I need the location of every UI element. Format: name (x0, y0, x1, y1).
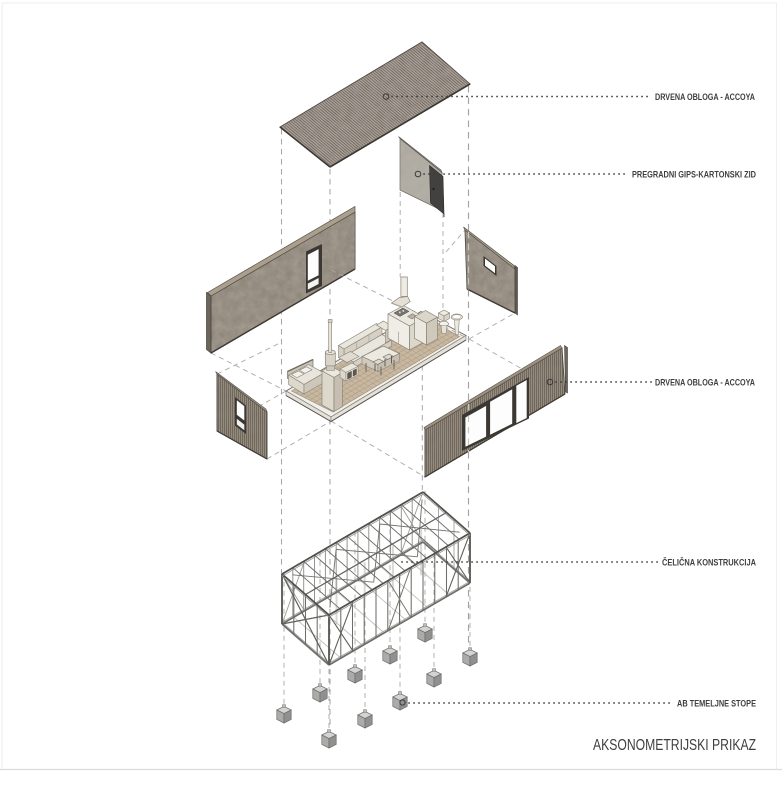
svg-text:AB TEMELJNE STOPE: AB TEMELJNE STOPE (677, 698, 756, 708)
svg-text:DRVENA OBLOGA - ACCOYA: DRVENA OBLOGA - ACCOYA (655, 377, 756, 387)
svg-text:ČELIČNA KONSTRUKCIJA: ČELIČNA KONSTRUKCIJA (662, 556, 757, 567)
svg-text:AKSONOMETRIJSKI PRIKAZ: AKSONOMETRIJSKI PRIKAZ (593, 737, 756, 754)
svg-text:DRVENA OBLOGA - ACCOYA: DRVENA OBLOGA - ACCOYA (655, 92, 756, 102)
svg-text:PREGRADNI GIPS-KARTONSKI ZID: PREGRADNI GIPS-KARTONSKI ZID (632, 169, 756, 179)
